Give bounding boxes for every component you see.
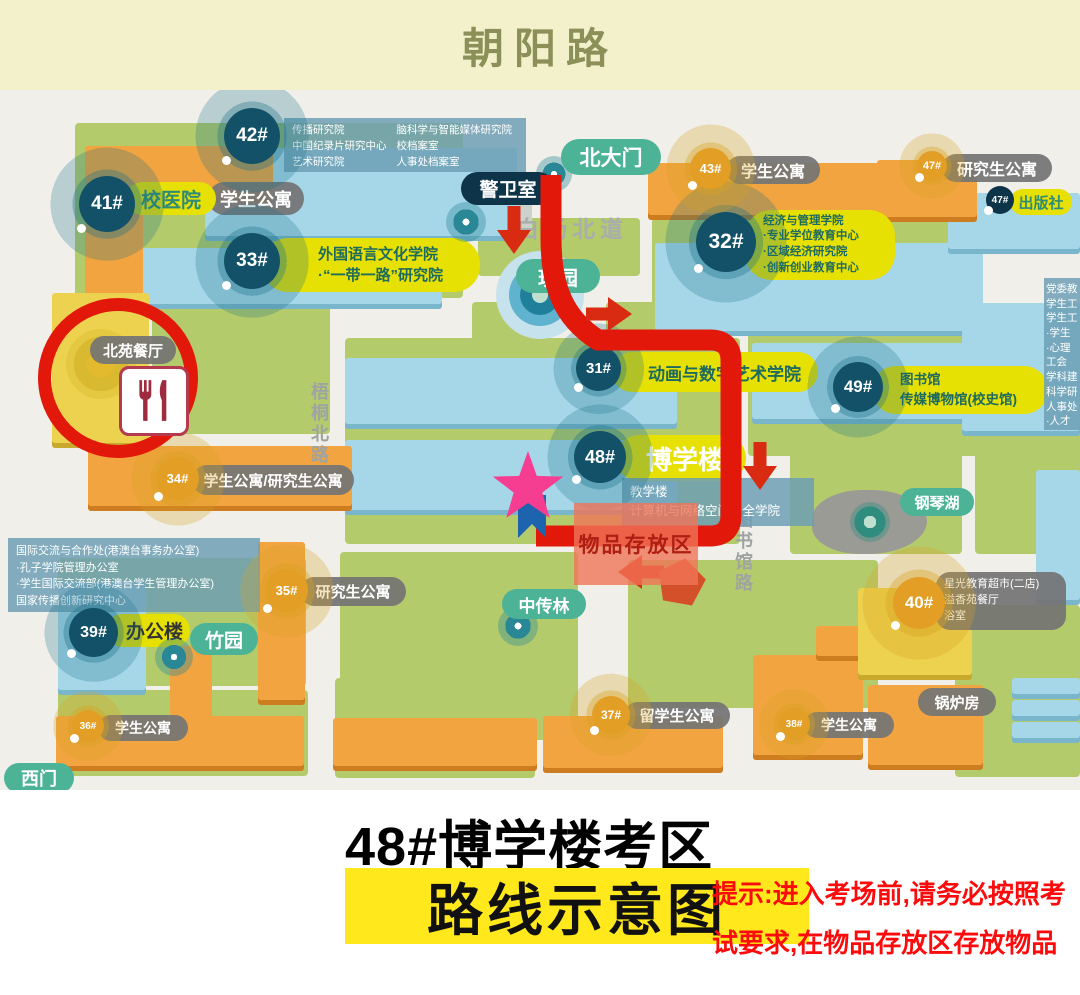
road-name-baiyang: 白杨北道	[516, 210, 628, 244]
label-47-press: 出版社	[1010, 189, 1072, 215]
marker-49: 49#	[833, 362, 883, 412]
lake-dot	[850, 502, 890, 542]
road-name-wutong: 梧桐北路	[306, 382, 332, 466]
route-map-page: 朝阳路	[0, 0, 1080, 995]
map-dot	[446, 202, 486, 242]
utensils-icon	[119, 366, 189, 436]
building-block	[816, 626, 863, 656]
exam-hint-text: 提示:进入考场前,请务必按照考 试要求,在物品存放区存放物品	[712, 870, 1066, 969]
marker-32: 32#	[696, 212, 756, 272]
label-meiyuan: 玫园	[516, 259, 600, 293]
info-block-42: 传播研究院中国纪录片研究中心艺术研究院 脑科学与智能媒体研究院校档案室人事处档案…	[284, 118, 526, 172]
marker-36: 36#	[72, 710, 104, 742]
building-37	[333, 718, 537, 766]
label-boiler: 锅炉房	[918, 688, 996, 716]
campus-map: 白杨北道 梧桐北路 图书馆路 传播研究院中国纪录片研究中心艺术研究院 脑科学与智…	[0, 90, 1080, 790]
info-col: 脑科学与智能媒体研究院校档案室人事处档案室	[397, 123, 513, 167]
road-name-top: 朝阳路	[462, 15, 618, 76]
marker-47-press: 47#	[986, 186, 1014, 214]
building-block	[1012, 678, 1080, 694]
marker-35: 35#	[265, 569, 308, 612]
storage-area-label: 物品存放区	[579, 529, 694, 559]
label-zhuyuan: 竹园	[190, 623, 258, 655]
marker-33: 33#	[224, 233, 280, 289]
marker-39: 39#	[69, 608, 118, 657]
storage-area-box: 物品存放区	[574, 503, 698, 585]
caption-area: 48#博学楼考区 路线示意图 提示:进入考场前,请务必按照考 试要求,在物品存放…	[0, 790, 1080, 995]
info-block-right-edge: 党委教学生工 学生工·学生 ·心理工会 学科建科学研 人事处·人才	[1044, 278, 1080, 430]
label-west-gate: 西门	[4, 763, 74, 790]
marker-43: 43#	[690, 148, 731, 189]
label-guard: 警卫室	[461, 172, 555, 205]
map-dot	[155, 638, 193, 676]
top-road-banner: 朝阳路	[0, 0, 1080, 90]
label-north-gate: 北大门	[561, 139, 661, 175]
hint-line-1: 提示:进入考场前,请务必按照考	[712, 870, 1066, 919]
marker-41: 41#	[79, 176, 135, 232]
marker-38: 38#	[778, 708, 810, 740]
hint-line-2: 试要求,在物品存放区存放物品	[712, 919, 1066, 968]
route-diagram-label: 路线示意图	[427, 866, 727, 947]
marker-42: 42#	[224, 108, 280, 164]
label-zhongchuanlin: 中传林	[502, 589, 586, 619]
building-block	[1012, 700, 1080, 716]
marker-48: 48#	[574, 431, 626, 483]
building-block	[1012, 722, 1080, 738]
marker-40: 40#	[893, 577, 945, 629]
marker-37: 37#	[592, 696, 630, 734]
marker-34: 34#	[156, 457, 199, 500]
label-gangqinhu: 钢琴湖	[900, 488, 974, 516]
marker-31: 31#	[576, 346, 621, 391]
marker-47-dorm: 47#	[917, 151, 947, 181]
